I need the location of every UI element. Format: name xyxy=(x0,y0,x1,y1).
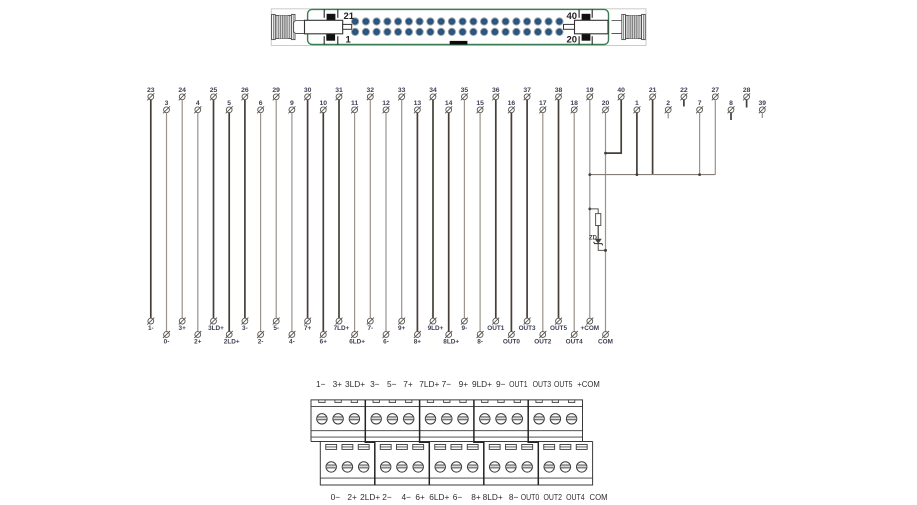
svg-text:2: 2 xyxy=(666,100,670,107)
svg-text:20: 20 xyxy=(602,100,610,107)
svg-text:39: 39 xyxy=(759,100,767,107)
svg-text:OUT2: OUT2 xyxy=(543,492,562,502)
svg-text:8-: 8- xyxy=(477,339,483,346)
svg-text:31: 31 xyxy=(335,87,343,94)
svg-text:3+: 3+ xyxy=(333,379,343,389)
svg-text:16: 16 xyxy=(508,100,516,107)
svg-text:5-: 5- xyxy=(273,325,279,332)
svg-text:1−: 1− xyxy=(316,379,326,389)
svg-text:9LD+: 9LD+ xyxy=(472,379,492,389)
svg-text:OUT4: OUT4 xyxy=(566,339,583,346)
svg-text:33: 33 xyxy=(398,87,406,94)
svg-text:8: 8 xyxy=(729,100,733,107)
svg-text:40: 40 xyxy=(617,87,625,94)
svg-text:8−: 8− xyxy=(509,492,519,502)
svg-text:OUT0: OUT0 xyxy=(521,492,540,502)
svg-text:8+: 8+ xyxy=(414,339,422,346)
svg-text:37: 37 xyxy=(523,87,531,94)
svg-text:14: 14 xyxy=(445,100,453,107)
svg-text:6+: 6+ xyxy=(320,339,328,346)
svg-text:5: 5 xyxy=(227,100,231,107)
svg-text:OUT4: OUT4 xyxy=(566,492,585,502)
svg-text:35: 35 xyxy=(461,87,469,94)
svg-text:COM: COM xyxy=(590,492,608,502)
svg-text:OUT1: OUT1 xyxy=(509,379,528,389)
svg-text:7: 7 xyxy=(698,100,702,107)
svg-text:2-: 2- xyxy=(258,339,264,346)
svg-text:32: 32 xyxy=(367,87,375,94)
svg-text:2LD+: 2LD+ xyxy=(360,492,380,502)
svg-text:25: 25 xyxy=(210,87,218,94)
svg-text:8+: 8+ xyxy=(471,492,481,502)
svg-text:1: 1 xyxy=(635,100,639,107)
svg-text:OUT5: OUT5 xyxy=(554,379,573,389)
svg-text:3: 3 xyxy=(165,100,169,107)
svg-text:4-: 4- xyxy=(289,339,295,346)
svg-text:17: 17 xyxy=(539,100,547,107)
svg-text:7−: 7− xyxy=(442,379,452,389)
svg-text:8LD+: 8LD+ xyxy=(443,339,459,346)
svg-text:+COM: +COM xyxy=(577,379,600,389)
svg-text:21: 21 xyxy=(649,87,657,94)
svg-text:3LD+: 3LD+ xyxy=(345,379,365,389)
svg-text:OUT2: OUT2 xyxy=(534,339,551,346)
svg-text:9+: 9+ xyxy=(459,379,469,389)
svg-text:2−: 2− xyxy=(382,492,392,502)
svg-text:4: 4 xyxy=(196,100,200,107)
svg-text:38: 38 xyxy=(555,87,563,94)
svg-text:OUT3: OUT3 xyxy=(533,379,552,389)
svg-text:23: 23 xyxy=(147,87,155,94)
svg-text:2+: 2+ xyxy=(194,339,202,346)
svg-text:7LD+: 7LD+ xyxy=(334,325,350,332)
svg-text:24: 24 xyxy=(178,87,186,94)
svg-text:36: 36 xyxy=(492,87,500,94)
svg-text:8LD+: 8LD+ xyxy=(483,492,503,502)
svg-text:6LD+: 6LD+ xyxy=(349,339,365,346)
svg-text:7-: 7- xyxy=(367,325,373,332)
svg-text:9−: 9− xyxy=(496,379,506,389)
svg-text:22: 22 xyxy=(680,87,688,94)
svg-text:6+: 6+ xyxy=(415,492,425,502)
svg-text:3-: 3- xyxy=(242,325,248,332)
svg-text:9LD+: 9LD+ xyxy=(428,325,444,332)
svg-text:OUT1: OUT1 xyxy=(487,325,504,332)
svg-text:12: 12 xyxy=(382,100,390,107)
svg-text:6-: 6- xyxy=(383,339,389,346)
svg-text:2LD+: 2LD+ xyxy=(224,339,240,346)
svg-text:7LD+: 7LD+ xyxy=(419,379,439,389)
svg-text:1-: 1- xyxy=(148,325,154,332)
svg-text:3−: 3− xyxy=(370,379,380,389)
svg-text:OUT0: OUT0 xyxy=(503,339,520,346)
svg-text:7+: 7+ xyxy=(304,325,312,332)
svg-text:0−: 0− xyxy=(331,492,341,502)
svg-text:10: 10 xyxy=(320,100,328,107)
svg-text:27: 27 xyxy=(712,87,720,94)
svg-text:3+: 3+ xyxy=(179,325,187,332)
svg-text:5−: 5− xyxy=(387,379,397,389)
svg-text:+COM: +COM xyxy=(580,325,599,332)
svg-text:29: 29 xyxy=(272,87,280,94)
svg-text:21: 21 xyxy=(344,11,355,22)
svg-text:34: 34 xyxy=(429,87,437,94)
svg-text:OUT5: OUT5 xyxy=(550,325,567,332)
svg-text:9: 9 xyxy=(290,100,294,107)
svg-text:26: 26 xyxy=(241,87,249,94)
svg-text:18: 18 xyxy=(570,100,578,107)
svg-text:40: 40 xyxy=(567,11,578,22)
svg-text:2+: 2+ xyxy=(347,492,357,502)
svg-text:13: 13 xyxy=(414,100,422,107)
svg-text:6: 6 xyxy=(259,100,263,107)
svg-text:30: 30 xyxy=(304,87,312,94)
svg-text:COM: COM xyxy=(598,339,613,346)
svg-text:9-: 9- xyxy=(462,325,468,332)
svg-text:20: 20 xyxy=(567,35,578,46)
svg-text:1: 1 xyxy=(346,35,352,46)
svg-text:0-: 0- xyxy=(164,339,170,346)
svg-text:3LD+: 3LD+ xyxy=(208,325,224,332)
svg-text:6−: 6− xyxy=(453,492,463,502)
svg-text:7+: 7+ xyxy=(403,379,413,389)
svg-text:28: 28 xyxy=(743,87,751,94)
svg-text:15: 15 xyxy=(476,100,484,107)
svg-text:4−: 4− xyxy=(401,492,411,502)
svg-text:9+: 9+ xyxy=(398,325,406,332)
svg-text:OUT3: OUT3 xyxy=(519,325,536,332)
svg-text:19: 19 xyxy=(586,87,594,94)
svg-text:11: 11 xyxy=(351,100,358,107)
svg-text:6LD+: 6LD+ xyxy=(429,492,449,502)
